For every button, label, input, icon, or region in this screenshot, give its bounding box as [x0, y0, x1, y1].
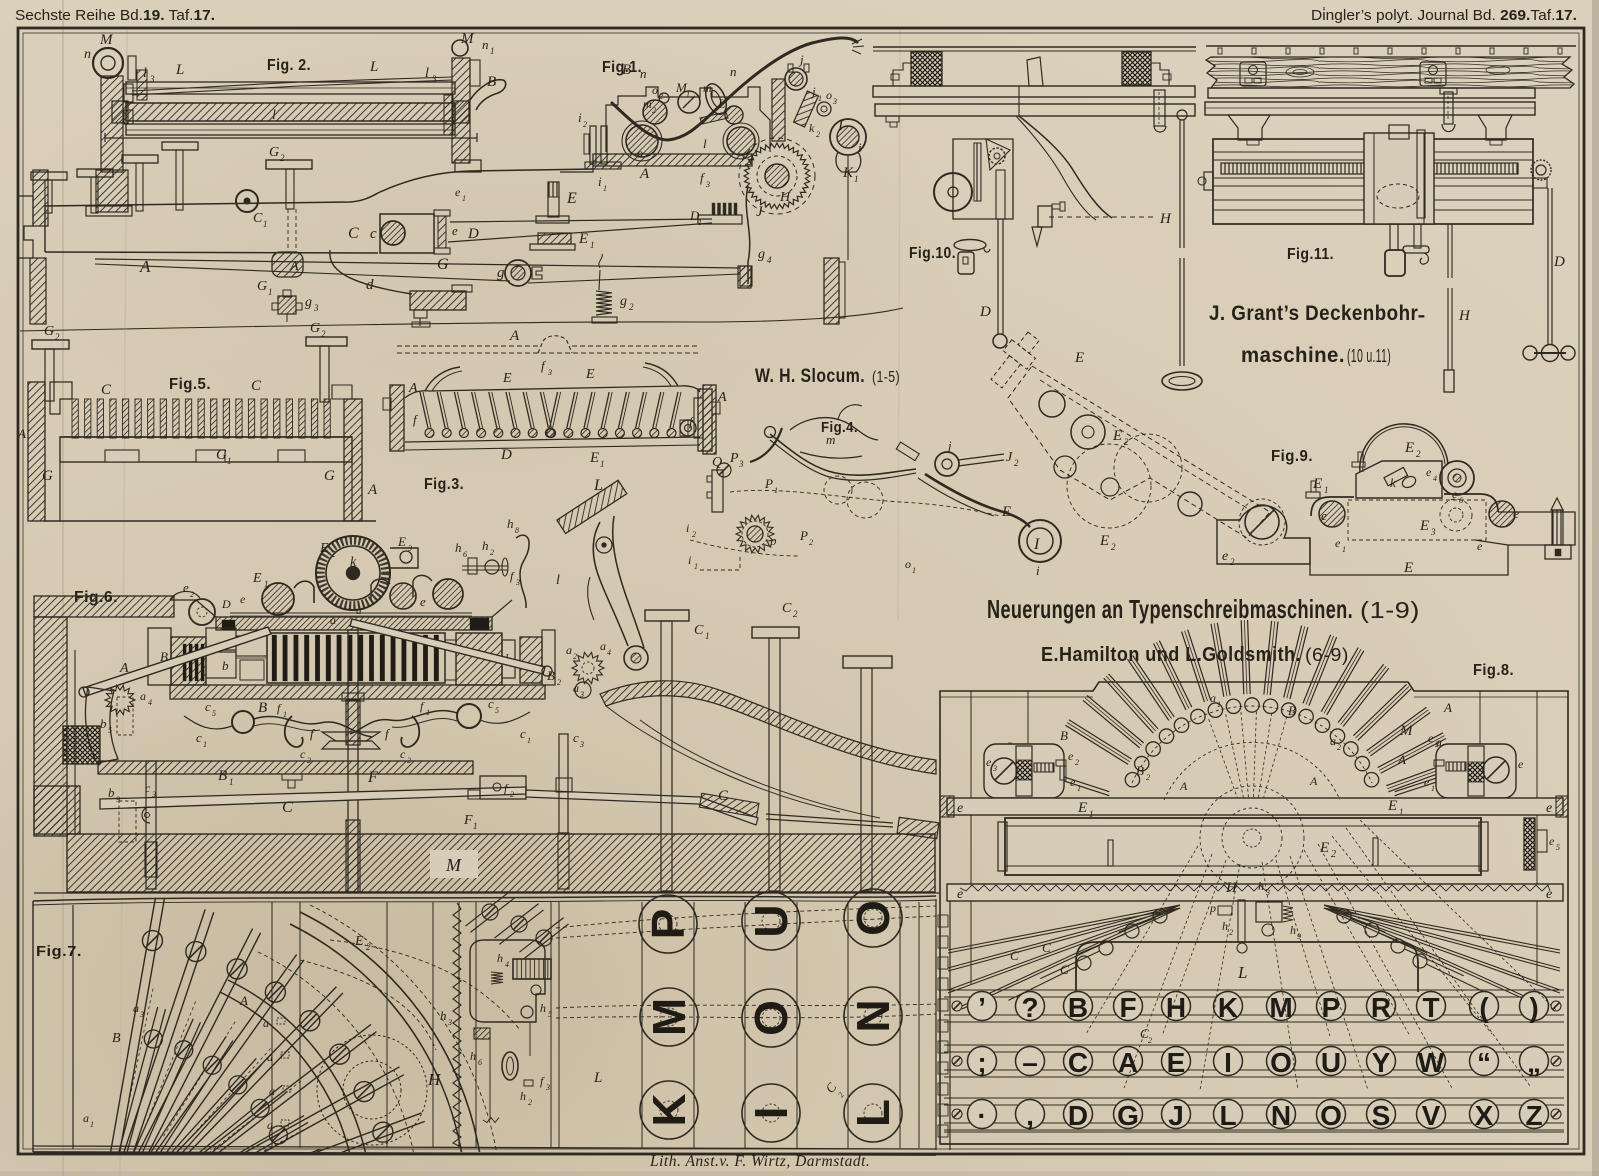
svg-text:H: H: [1458, 308, 1471, 324]
svg-text:a: a: [263, 1016, 269, 1030]
svg-text:2: 2: [528, 1098, 532, 1107]
svg-text:d: d: [366, 277, 374, 293]
svg-text:2: 2: [809, 538, 813, 547]
svg-text:h: h: [455, 540, 462, 555]
svg-text:U: U: [745, 904, 797, 937]
svg-text:E: E: [585, 367, 595, 382]
svg-text:E: E: [1419, 518, 1429, 534]
svg-text:2: 2: [321, 329, 326, 339]
svg-text:A: A: [1309, 774, 1318, 788]
svg-text:K: K: [643, 1093, 695, 1126]
svg-text:a: a: [1330, 734, 1336, 748]
svg-text:Fig.7.: Fig.7.: [36, 943, 82, 960]
svg-text:h: h: [470, 1049, 476, 1063]
svg-text:c: c: [300, 747, 306, 761]
svg-text:M: M: [99, 32, 114, 48]
svg-text:H: H: [779, 190, 791, 205]
svg-text:c: c: [400, 747, 406, 761]
svg-text:c: c: [573, 730, 579, 745]
svg-text:n: n: [730, 64, 737, 79]
svg-text:6: 6: [478, 1058, 482, 1067]
svg-text:Z: Z: [1525, 1100, 1542, 1131]
svg-text:1: 1: [698, 218, 702, 227]
svg-text:o: o: [652, 83, 658, 97]
svg-text:E: E: [354, 934, 364, 949]
svg-text:Fig.5.: Fig.5.: [169, 376, 211, 393]
svg-text:1: 1: [527, 736, 531, 745]
svg-text:Lith. Anst.v. F. Wirtz, Darmst: Lith. Anst.v. F. Wirtz, Darmstadt.: [649, 1153, 870, 1170]
svg-text:2: 2: [1331, 849, 1336, 860]
svg-text:1: 1: [1324, 485, 1329, 495]
svg-text:a: a: [140, 689, 146, 703]
svg-text:A: A: [367, 482, 378, 498]
svg-text:3: 3: [992, 764, 997, 773]
svg-text:3: 3: [738, 459, 744, 469]
svg-text:P: P: [799, 528, 808, 543]
svg-text:Fig. 2.: Fig. 2.: [267, 57, 311, 74]
svg-text:i: i: [578, 110, 582, 125]
svg-text:O: O: [1320, 1100, 1342, 1131]
svg-text:I: I: [1224, 1047, 1232, 1078]
svg-text:2: 2: [1229, 928, 1233, 937]
svg-text:,: ,: [1026, 1100, 1034, 1131]
svg-text:G: G: [42, 468, 53, 484]
svg-text:C: C: [251, 378, 262, 394]
svg-text:e: e: [957, 801, 963, 816]
svg-text:8: 8: [515, 526, 519, 535]
svg-text:e: e: [1518, 757, 1524, 771]
svg-text:2: 2: [652, 106, 656, 115]
svg-text:e: e: [452, 223, 458, 238]
svg-text:1: 1: [473, 821, 478, 831]
svg-text:2: 2: [280, 153, 285, 163]
svg-text:C: C: [1068, 1047, 1088, 1078]
svg-text:B: B: [258, 700, 267, 716]
svg-text:B: B: [112, 1031, 121, 1046]
svg-text:A: A: [119, 661, 129, 676]
svg-text:e: e: [1321, 508, 1327, 523]
svg-text:h: h: [1222, 919, 1228, 933]
svg-text:g: g: [497, 265, 505, 281]
svg-text:1: 1: [603, 184, 607, 193]
svg-text:b: b: [222, 658, 229, 673]
svg-text:3: 3: [151, 790, 156, 799]
svg-text:1: 1: [818, 94, 822, 103]
svg-text:E: E: [1319, 840, 1329, 856]
svg-text:H: H: [1159, 211, 1172, 227]
svg-text:2: 2: [583, 120, 587, 129]
svg-text:a: a: [573, 681, 579, 695]
svg-text:o: o: [637, 146, 643, 160]
svg-text:i: i: [598, 174, 602, 189]
svg-text:A: A: [239, 993, 248, 1008]
svg-text:3: 3: [579, 740, 584, 749]
svg-text:e: e: [1546, 801, 1552, 816]
svg-text:F: F: [1119, 992, 1136, 1023]
svg-text:J. Grant’s Deckenbohr˗: J. Grant’s Deckenbohr˗: [1209, 302, 1425, 325]
svg-text:g: g: [620, 294, 627, 309]
svg-text:A: A: [139, 257, 151, 276]
svg-text:E: E: [578, 231, 588, 247]
svg-text:2: 2: [55, 332, 60, 342]
svg-text:i: i: [858, 140, 862, 155]
svg-text:a: a: [267, 1118, 273, 1132]
svg-text:1: 1: [1431, 784, 1435, 793]
svg-text:J: J: [1006, 450, 1013, 465]
svg-text:c: c: [520, 726, 526, 741]
svg-text:C: C: [348, 225, 359, 242]
svg-text:C: C: [1042, 940, 1051, 955]
svg-text:o: o: [826, 88, 832, 102]
svg-text:H: H: [427, 1070, 442, 1089]
svg-text:Y: Y: [1372, 1047, 1391, 1078]
svg-text:3: 3: [447, 1018, 452, 1027]
svg-text:2: 2: [190, 590, 194, 599]
svg-text:h: h: [1258, 879, 1264, 893]
svg-text:M: M: [643, 998, 695, 1036]
svg-text:2: 2: [557, 678, 561, 687]
svg-text:L: L: [717, 96, 725, 111]
svg-text:1: 1: [227, 456, 232, 466]
svg-text:m: m: [826, 432, 835, 447]
svg-text:O: O: [1270, 1047, 1292, 1078]
svg-text:A: A: [1179, 779, 1188, 793]
svg-text:4: 4: [607, 648, 611, 657]
svg-text:V: V: [1422, 1100, 1441, 1131]
svg-text:5: 5: [108, 726, 112, 735]
svg-text:M: M: [460, 31, 475, 47]
svg-text:2: 2: [629, 302, 634, 312]
svg-text:I: I: [1033, 536, 1040, 553]
svg-text:1: 1: [90, 1120, 94, 1129]
svg-text:e: e: [1222, 549, 1228, 564]
svg-text:a: a: [566, 643, 572, 657]
svg-text:3: 3: [431, 74, 437, 84]
svg-text:1: 1: [490, 46, 495, 56]
svg-text:2: 2: [1230, 557, 1235, 567]
svg-text:2: 2: [1075, 758, 1079, 767]
svg-text:A: A: [1443, 700, 1452, 715]
svg-text:1: 1: [912, 566, 916, 575]
svg-text:D: D: [1068, 1100, 1088, 1131]
svg-text:Sechste Reihe Bd.19. Taf.17.: Sechste Reihe Bd.19. Taf.17.: [15, 7, 215, 24]
svg-text:l: l: [703, 136, 707, 151]
svg-text:1: 1: [705, 631, 710, 641]
svg-text:a: a: [267, 1050, 273, 1064]
svg-text:1: 1: [854, 174, 859, 184]
svg-text:1: 1: [590, 240, 595, 250]
svg-text:E: E: [1167, 1047, 1186, 1078]
svg-text:1: 1: [774, 486, 778, 495]
svg-text:?: ?: [1021, 992, 1038, 1023]
svg-text:D: D: [500, 447, 512, 463]
svg-text:Fig.11.: Fig.11.: [1287, 246, 1334, 263]
svg-text:Neuerungen an Typenschreibma: Neuerungen an Typenschreibmaschinen.: [987, 594, 1353, 624]
svg-text:G: G: [269, 145, 279, 160]
svg-text:3: 3: [313, 303, 319, 313]
svg-text:2: 2: [510, 790, 514, 799]
svg-text:3: 3: [832, 97, 837, 106]
svg-text:1: 1: [1399, 807, 1404, 817]
svg-text:B: B: [487, 74, 496, 90]
svg-text:4: 4: [505, 960, 509, 969]
svg-text:2: 2: [490, 548, 494, 557]
svg-text:E: E: [252, 571, 262, 586]
svg-text:I: I: [837, 118, 844, 134]
svg-text:L: L: [593, 1070, 602, 1086]
svg-text:1: 1: [600, 459, 605, 469]
svg-text:h: h: [1290, 923, 1296, 937]
svg-text:2: 2: [659, 92, 663, 101]
svg-text:h: h: [482, 538, 489, 553]
svg-text:C: C: [1010, 948, 1019, 963]
svg-text:M: M: [445, 855, 462, 875]
svg-text:E: E: [397, 534, 406, 549]
svg-text:E: E: [1312, 476, 1322, 492]
svg-text:C: C: [101, 382, 112, 398]
svg-text:h: h: [440, 1008, 447, 1023]
svg-text:E: E: [1099, 533, 1109, 549]
svg-text:e: e: [455, 185, 461, 199]
svg-text:1: 1: [203, 740, 207, 749]
svg-text:h: h: [497, 951, 503, 965]
svg-text:maschine.: maschine.: [1241, 344, 1345, 367]
svg-text:C: C: [253, 211, 263, 226]
svg-text:M: M: [1269, 992, 1292, 1023]
svg-text:’: ’: [978, 992, 986, 1023]
svg-text:O: O: [745, 1000, 797, 1036]
svg-text:e: e: [1428, 731, 1434, 745]
svg-text:a: a: [133, 1001, 139, 1015]
svg-text:D: D: [467, 226, 479, 242]
svg-text:a: a: [356, 605, 362, 617]
svg-text:E: E: [1112, 428, 1122, 444]
svg-text:B: B: [1060, 728, 1068, 743]
svg-text:A: A: [639, 166, 650, 182]
svg-text:1: 1: [1217, 700, 1221, 709]
svg-text:C: C: [282, 799, 293, 816]
svg-text:k: k: [350, 555, 357, 570]
svg-text:5: 5: [1556, 843, 1560, 852]
svg-text:3: 3: [705, 180, 710, 189]
svg-text:1: 1: [229, 777, 234, 787]
svg-text:3: 3: [579, 690, 584, 699]
svg-text:K: K: [842, 165, 854, 181]
svg-text:2: 2: [1435, 740, 1439, 749]
svg-text:e: e: [1068, 749, 1074, 763]
svg-text:P: P: [642, 909, 694, 940]
svg-text:Fig.10.: Fig.10.: [909, 245, 956, 262]
svg-text:–: –: [1022, 1047, 1038, 1078]
svg-text:O: O: [847, 900, 899, 936]
svg-text:l: l: [143, 66, 147, 81]
svg-text:G: G: [257, 279, 267, 294]
svg-text:L: L: [1237, 963, 1247, 982]
svg-text:B: B: [1288, 703, 1296, 718]
svg-text:Fig.9.: Fig.9.: [1271, 448, 1313, 465]
svg-text:X: X: [1475, 1100, 1494, 1131]
svg-text:(10 u.11): (10 u.11): [1347, 346, 1391, 366]
svg-text:E: E: [566, 190, 577, 207]
svg-text:L: L: [847, 1099, 899, 1127]
svg-text:G: G: [310, 321, 320, 336]
svg-text:n: n: [640, 66, 647, 81]
svg-text:G: G: [1117, 1100, 1139, 1131]
svg-text:9: 9: [116, 795, 120, 804]
svg-text:c: c: [205, 699, 211, 714]
svg-text:C: C: [718, 788, 729, 804]
svg-text:B: B: [1136, 763, 1144, 778]
svg-text:B: B: [622, 62, 631, 78]
svg-text:n: n: [84, 47, 91, 62]
svg-text:T: T: [1422, 992, 1439, 1023]
svg-text:e: e: [1070, 775, 1076, 789]
svg-text:m: m: [643, 97, 652, 111]
svg-text:G: G: [44, 324, 54, 339]
svg-text:A: A: [509, 328, 520, 344]
svg-text:5: 5: [212, 709, 216, 718]
svg-text:E: E: [1387, 798, 1397, 814]
svg-text:3: 3: [149, 74, 155, 84]
svg-text:1: 1: [1342, 545, 1346, 554]
svg-text:E: E: [319, 541, 329, 556]
svg-text:A: A: [17, 426, 26, 441]
svg-text:a: a: [600, 639, 606, 653]
svg-text:l: l: [272, 108, 276, 123]
svg-text:o: o: [742, 147, 748, 161]
svg-text:2: 2: [331, 549, 336, 559]
svg-text:L: L: [175, 62, 184, 78]
svg-text:B: B: [1068, 992, 1088, 1023]
svg-text:D: D: [221, 597, 231, 611]
svg-text:(1-5): (1-5): [872, 369, 900, 386]
svg-text:G: G: [324, 468, 335, 484]
svg-text:P: P: [729, 451, 739, 466]
svg-text:e: e: [1549, 834, 1555, 848]
svg-text:2: 2: [1337, 743, 1341, 752]
svg-text:k: k: [809, 121, 815, 135]
svg-text:E: E: [1404, 440, 1414, 456]
svg-text:4: 4: [1433, 474, 1437, 483]
svg-text:m: m: [703, 81, 712, 95]
svg-text:1: 1: [268, 287, 273, 297]
svg-text:c: c: [196, 730, 202, 745]
svg-text:4: 4: [148, 698, 152, 707]
svg-text:g: g: [758, 247, 765, 262]
svg-text:h: h: [540, 1001, 546, 1015]
svg-text:e: e: [986, 755, 992, 769]
svg-text:3: 3: [545, 1083, 550, 1092]
svg-text:g: g: [305, 295, 312, 310]
svg-text:2: 2: [1148, 1036, 1152, 1045]
svg-text:b: b: [100, 716, 107, 731]
svg-text:U: U: [1321, 1047, 1341, 1078]
svg-text:1: 1: [263, 219, 268, 229]
svg-text:E: E: [1001, 504, 1011, 520]
svg-text:E: E: [1403, 560, 1413, 576]
svg-text:(1-9): (1-9): [1360, 597, 1420, 623]
svg-text:N: N: [1271, 1100, 1291, 1131]
svg-text:n: n: [482, 37, 489, 52]
svg-text:P: P: [764, 476, 773, 491]
svg-text:2: 2: [692, 530, 696, 539]
svg-text:W. H. Slocum.: W. H. Slocum.: [755, 366, 865, 387]
svg-text:“: “: [1477, 1047, 1491, 1078]
svg-text:2: 2: [816, 130, 820, 139]
svg-text:E: E: [502, 371, 512, 386]
svg-text:e: e: [1335, 536, 1341, 550]
svg-text:A: A: [1397, 752, 1406, 767]
svg-text:„: „: [1527, 1047, 1541, 1078]
svg-text:l: l: [556, 573, 560, 588]
svg-text:C: C: [694, 623, 704, 638]
svg-text:B: B: [218, 768, 227, 784]
svg-text:i: i: [1036, 563, 1040, 578]
svg-text:e: e: [183, 580, 189, 595]
svg-text:E: E: [1074, 350, 1084, 366]
svg-text:R: R: [1371, 992, 1391, 1023]
svg-text:h: h: [520, 1089, 526, 1103]
svg-text:·: ·: [977, 1100, 986, 1131]
svg-text:D: D: [1553, 254, 1565, 270]
svg-text:E: E: [589, 450, 599, 466]
svg-text:;: ;: [977, 1047, 986, 1078]
svg-text:E.Hamilton und L.Goldsmith.: E.Hamilton und L.Goldsmith.: [1041, 644, 1301, 666]
svg-text:i: i: [688, 553, 691, 567]
svg-text:l: l: [425, 66, 429, 81]
svg-text:c: c: [488, 696, 494, 711]
svg-text:e: e: [1513, 507, 1519, 522]
svg-text:a: a: [269, 1084, 275, 1098]
svg-text:a: a: [83, 1111, 89, 1125]
svg-text:L: L: [593, 477, 603, 494]
svg-text:3: 3: [407, 544, 412, 553]
svg-text:e: e: [420, 594, 426, 609]
svg-text:1: 1: [426, 708, 430, 717]
svg-text:): ): [1529, 992, 1538, 1023]
svg-text:W: W: [1418, 1047, 1445, 1078]
svg-text:L: L: [369, 59, 378, 75]
svg-text:2: 2: [366, 942, 371, 952]
svg-text:c: c: [370, 226, 377, 242]
svg-text:6: 6: [463, 550, 467, 559]
svg-text:3: 3: [1430, 527, 1436, 537]
svg-text:1: 1: [1077, 784, 1081, 793]
svg-text:2: 2: [573, 652, 577, 661]
svg-text:3: 3: [139, 1010, 144, 1019]
svg-text:a: a: [330, 613, 336, 627]
svg-text:1: 1: [283, 710, 287, 719]
svg-text:2: 2: [1014, 458, 1019, 468]
svg-text:N: N: [847, 999, 899, 1032]
svg-text:e: e: [1452, 487, 1458, 501]
svg-text:A: A: [408, 381, 418, 396]
svg-text:D: D: [979, 304, 991, 320]
svg-text:B: B: [547, 668, 555, 683]
svg-text:(: (: [1479, 992, 1489, 1023]
svg-text:1: 1: [462, 194, 466, 203]
svg-text:Fig.3.: Fig.3.: [424, 476, 464, 493]
svg-text:M: M: [1399, 723, 1414, 739]
svg-text:4: 4: [767, 255, 772, 265]
svg-text:p: p: [769, 533, 777, 548]
svg-text:3: 3: [547, 368, 552, 377]
svg-text:L: L: [1219, 1100, 1236, 1131]
svg-text:A: A: [717, 390, 727, 405]
svg-text:5: 5: [495, 706, 499, 715]
svg-text:2: 2: [1416, 449, 1421, 459]
svg-text:1: 1: [264, 579, 269, 589]
